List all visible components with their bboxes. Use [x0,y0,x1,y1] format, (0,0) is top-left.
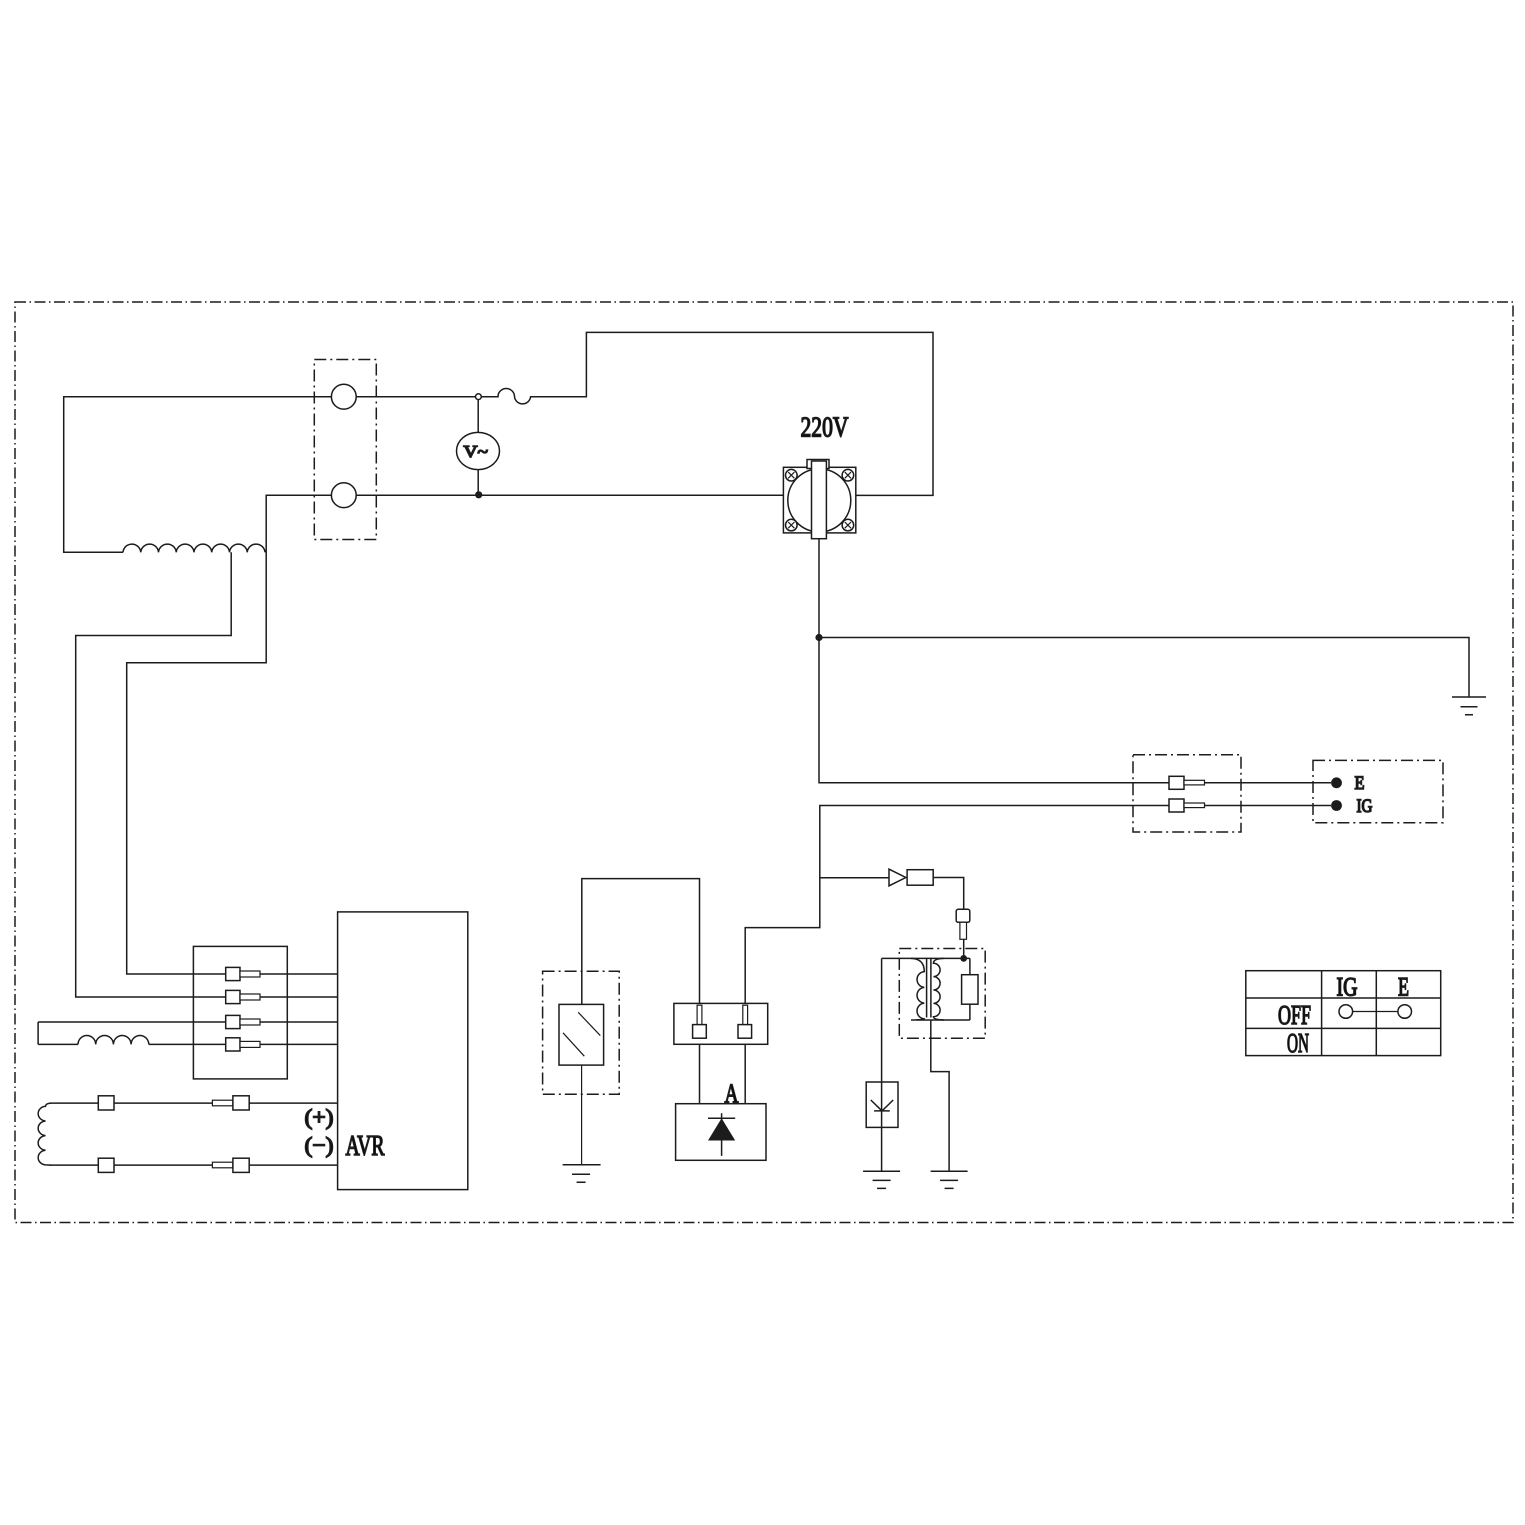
svg-text:AVR: AVR [346,1131,385,1162]
svg-text:IG: IG [1357,796,1373,817]
svg-text:220V: 220V [801,412,849,444]
svg-text:OFF: OFF [1278,1000,1311,1030]
svg-text:(−): (−) [305,1133,334,1158]
svg-text:V~: V~ [464,442,489,461]
svg-text:ON: ON [1287,1028,1309,1058]
svg-text:(+): (+) [305,1105,334,1130]
svg-text:E: E [1355,773,1365,794]
svg-text:IG: IG [1337,973,1358,1002]
svg-text:E: E [1398,973,1409,1002]
